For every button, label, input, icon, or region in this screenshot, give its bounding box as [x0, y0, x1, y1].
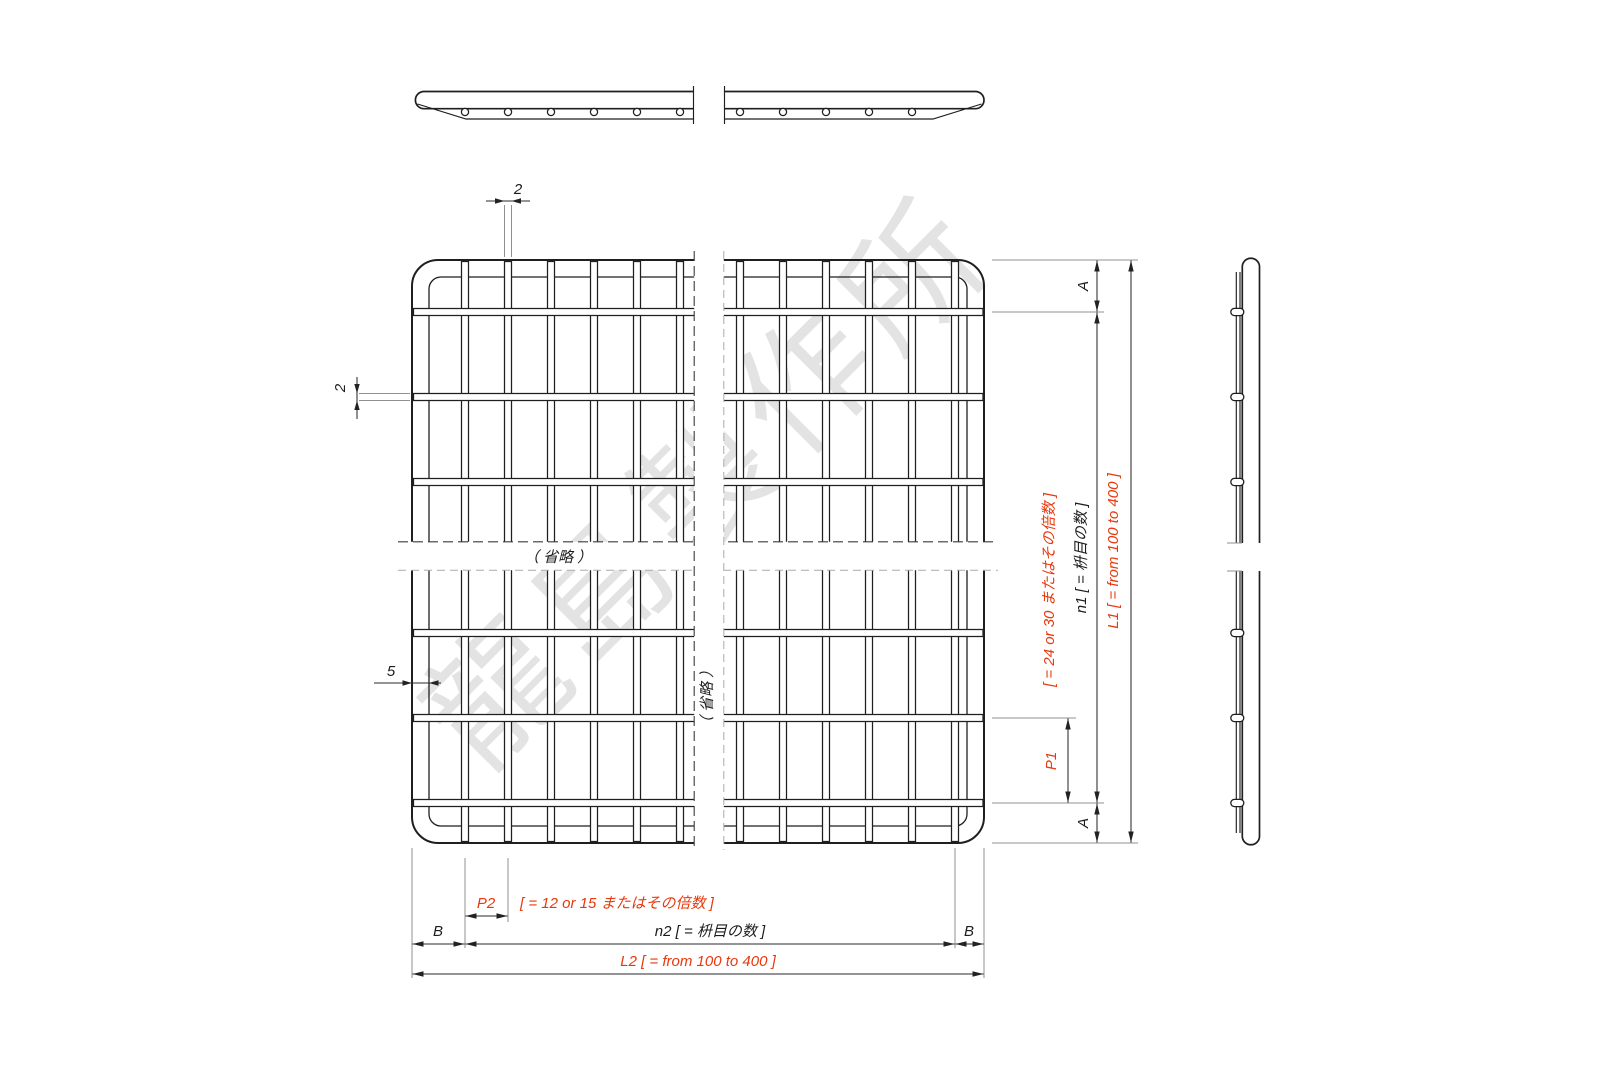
dim-p1-note: [ = 24 or 30 またはその倍数 ] [1041, 492, 1058, 688]
dim-l2-label: L2 [ = from 100 to 400 ] [620, 953, 776, 970]
drawing-page: 龍島製作所 [0, 0, 1600, 1067]
dim-n2-label: n2 [ = 枡目の数 ] [655, 923, 766, 940]
technical-drawing: 龍島製作所 [0, 0, 1600, 1067]
dim-p1-label: P1 [1043, 752, 1060, 770]
dim-a-top-label: A [1075, 281, 1092, 292]
side-view [1227, 258, 1260, 845]
top-view [415, 86, 984, 124]
dims-right: A A P1 [ = 24 or 30 またはその倍数 ] n1 [ = 枡目の… [992, 260, 1138, 843]
dim-wire-diameter-left: 2 [332, 377, 410, 419]
dims-bottom: P2 [ = 12 or 15 またはその倍数 ] B n2 [ = 枡目の数 … [412, 848, 984, 978]
dim-b-right-label: B [964, 923, 974, 940]
dim-wire-diameter-top: 2 [486, 181, 530, 257]
omitted-label-vertical: （ 省略 ） [699, 663, 716, 731]
dim-n1-label: n1 [ = 枡目の数 ] [1073, 502, 1090, 613]
frame-wire-label: 5 [387, 663, 396, 680]
wire-diameter-top-label: 2 [513, 181, 523, 198]
dim-p2-note: [ = 12 or 15 またはその倍数 ] [519, 895, 715, 912]
omitted-label-horizontal: （ 省略 ） [524, 549, 592, 566]
dim-p2-label: P2 [477, 895, 496, 912]
dim-l1-label: L1 [ = from 100 to 400 ] [1105, 472, 1122, 628]
dim-b-left-label: B [433, 923, 443, 940]
vertical-break-band [694, 251, 724, 850]
wire-diameter-left-label: 2 [332, 383, 349, 393]
dim-a-bottom-label: A [1075, 818, 1092, 829]
